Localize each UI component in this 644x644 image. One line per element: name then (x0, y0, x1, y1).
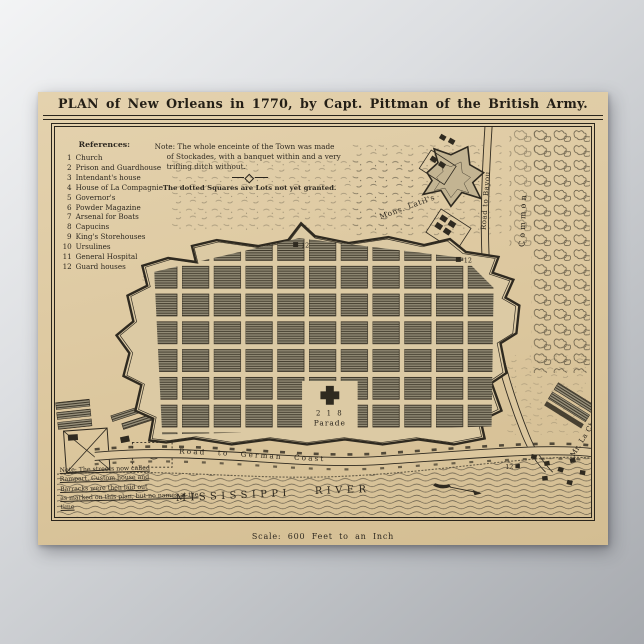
reference-row: 8Capucins (63, 222, 175, 232)
streets-note-line: as marked on this plan, but no names at … (60, 490, 212, 513)
parade-numbers: 2 1 8 (316, 409, 344, 417)
ornament-diamond-icon (245, 173, 254, 182)
enceinte-note-line: trifling ditch without. (167, 162, 345, 172)
title-rule (43, 115, 603, 120)
parade-label: Parade (313, 418, 345, 427)
poster-title: PLAN of New Orleans in 1770, by Capt. Pi… (38, 96, 608, 111)
enceinte-note-line: of Stockades, with a banquet within and … (167, 152, 345, 162)
reference-row: 5Governor's (63, 193, 175, 203)
enceinte-note: Note: The whole enceinte of the Town was… (155, 142, 345, 194)
streets-note: Note: The streets now called Rampart, Cu… (59, 462, 212, 512)
map-poster: PLAN of New Orleans in 1770, by Capt. Pi… (38, 92, 608, 545)
scale-note: Scale: 600 Feet to an Inch (38, 532, 608, 541)
label-common: Common (517, 192, 528, 247)
svg-text:12: 12 (463, 256, 471, 264)
reference-row: 6Powder Magazine (63, 203, 175, 213)
enceinte-note-line: Note: The whole enceinte of the Town was… (155, 142, 345, 152)
reference-row: 12Guard houses (63, 262, 175, 272)
map-border-inner: 2 1 8 Parade 12 12 12 (54, 126, 593, 519)
reference-row: 9King's Storehouses (63, 232, 175, 242)
dotted-squares-note: The dotted Squares are Lots not yet gran… (155, 184, 345, 194)
svg-text:12: 12 (301, 241, 309, 249)
reference-row: 7Arsenal for Boats (63, 212, 175, 222)
reference-row: 10Ursulines (63, 242, 175, 252)
map-frame: 2 1 8 Parade 12 12 12 (51, 123, 595, 521)
divider-ornament (232, 175, 268, 182)
reference-row: 11General Hospital (63, 252, 175, 262)
page-background: { "poster": { "title": "PLAN of New Orle… (0, 0, 644, 644)
label-river: RIVER (314, 484, 370, 497)
parade-ground: 2 1 8 Parade (302, 381, 358, 435)
trees-right-band (509, 130, 589, 373)
